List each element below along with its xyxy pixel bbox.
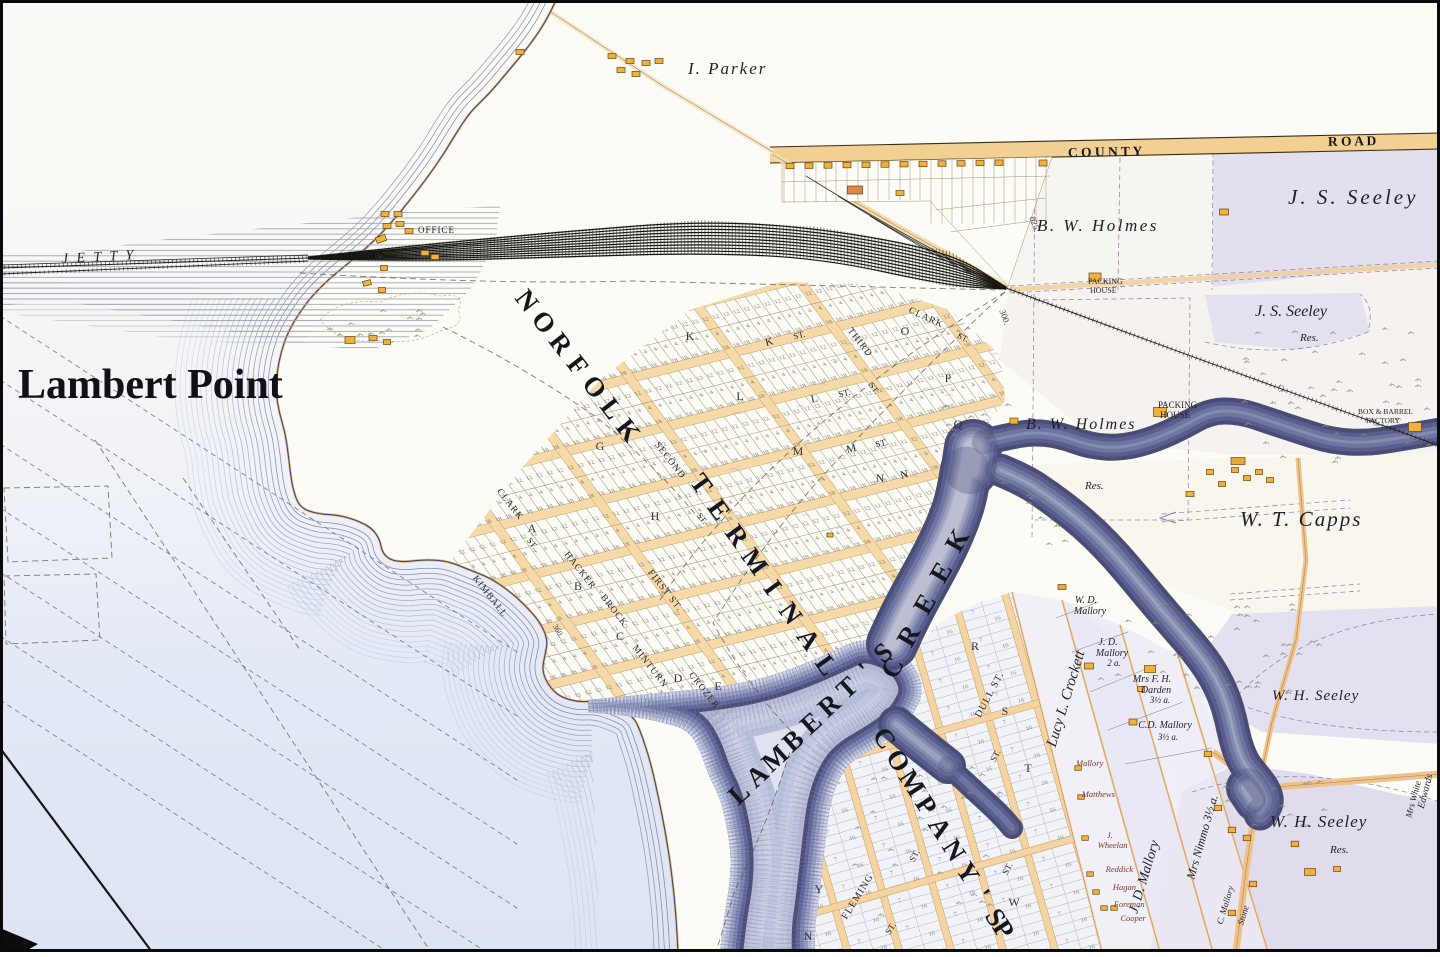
svg-text:C O U N T Y: C O U N T Y bbox=[1068, 143, 1143, 160]
svg-text:A: A bbox=[528, 521, 537, 535]
svg-text:W. D.: W. D. bbox=[1075, 595, 1097, 606]
svg-text:Mallory: Mallory bbox=[1073, 606, 1107, 617]
svg-text:T: T bbox=[1024, 761, 1032, 775]
svg-text:Res.: Res. bbox=[1299, 332, 1319, 344]
svg-text:N: N bbox=[876, 471, 885, 485]
svg-text:W: W bbox=[1008, 895, 1020, 909]
svg-text:J. S. Seeley: J. S. Seeley bbox=[1288, 185, 1418, 209]
svg-text:S: S bbox=[1002, 704, 1009, 718]
svg-text:E: E bbox=[714, 679, 721, 693]
svg-text:O: O bbox=[901, 324, 910, 338]
svg-text:HOUSE: HOUSE bbox=[1160, 410, 1191, 420]
svg-text:K: K bbox=[686, 329, 695, 343]
svg-text:P: P bbox=[945, 371, 952, 385]
svg-text:J.: J. bbox=[1107, 830, 1113, 840]
svg-text:Mrs F. H.: Mrs F. H. bbox=[1132, 674, 1171, 685]
svg-text:Lambert Point: Lambert Point bbox=[18, 362, 283, 408]
svg-text:PACKING: PACKING bbox=[1088, 277, 1123, 286]
svg-text:HOUSE: HOUSE bbox=[1090, 286, 1117, 295]
svg-text:G: G bbox=[596, 439, 605, 453]
svg-text:Res.: Res. bbox=[1084, 480, 1104, 492]
svg-text:B: B bbox=[574, 579, 582, 593]
svg-text:3½ a.: 3½ a. bbox=[1149, 695, 1170, 705]
svg-text:C: C bbox=[616, 629, 624, 643]
svg-text:OFFICE: OFFICE bbox=[418, 225, 455, 235]
svg-text:BOX & BARREL: BOX & BARREL bbox=[1358, 407, 1413, 416]
svg-text:B. W. Holmes: B. W. Holmes bbox=[1037, 216, 1159, 235]
svg-text:Cooper: Cooper bbox=[1120, 913, 1146, 923]
svg-text:Res.: Res. bbox=[1329, 844, 1349, 856]
svg-text:Hagan: Hagan bbox=[1112, 882, 1136, 892]
svg-text:L: L bbox=[736, 389, 743, 403]
svg-text:H: H bbox=[651, 509, 660, 523]
svg-text:J. S. Seeley: J. S. Seeley bbox=[1255, 303, 1328, 320]
svg-text:W. H. Seeley: W. H. Seeley bbox=[1272, 688, 1359, 704]
svg-text:M: M bbox=[793, 444, 804, 458]
svg-text:W. T. Capps: W. T. Capps bbox=[1240, 507, 1362, 531]
svg-text:FACTORY: FACTORY bbox=[1366, 416, 1400, 425]
svg-text:C.D. Mallory: C.D. Mallory bbox=[1138, 720, 1192, 731]
svg-text:Q: Q bbox=[954, 417, 963, 431]
svg-text:N: N bbox=[804, 929, 813, 943]
svg-text:PACKING: PACKING bbox=[1158, 400, 1198, 410]
svg-text:J. D.: J. D. bbox=[1098, 637, 1117, 648]
svg-text:W. H. Seeley: W. H. Seeley bbox=[1270, 812, 1367, 831]
svg-text:R: R bbox=[971, 639, 979, 653]
svg-text:3½ a.: 3½ a. bbox=[1157, 732, 1178, 742]
svg-text:I. Parker: I. Parker bbox=[687, 59, 767, 78]
svg-text:R O A D: R O A D bbox=[1328, 133, 1377, 149]
svg-text:D: D bbox=[674, 671, 683, 685]
svg-text:Foreman: Foreman bbox=[1113, 899, 1145, 909]
svg-text:2 a.: 2 a. bbox=[1107, 658, 1121, 668]
svg-text:Matthews: Matthews bbox=[1081, 789, 1116, 799]
svg-text:Wheelan: Wheelan bbox=[1098, 840, 1128, 850]
svg-text:Reddick: Reddick bbox=[1105, 864, 1134, 874]
svg-text:B. W. Holmes: B. W. Holmes bbox=[1026, 416, 1137, 433]
svg-text:Y: Y bbox=[815, 882, 824, 896]
svg-text:Mallory: Mallory bbox=[1075, 758, 1104, 768]
